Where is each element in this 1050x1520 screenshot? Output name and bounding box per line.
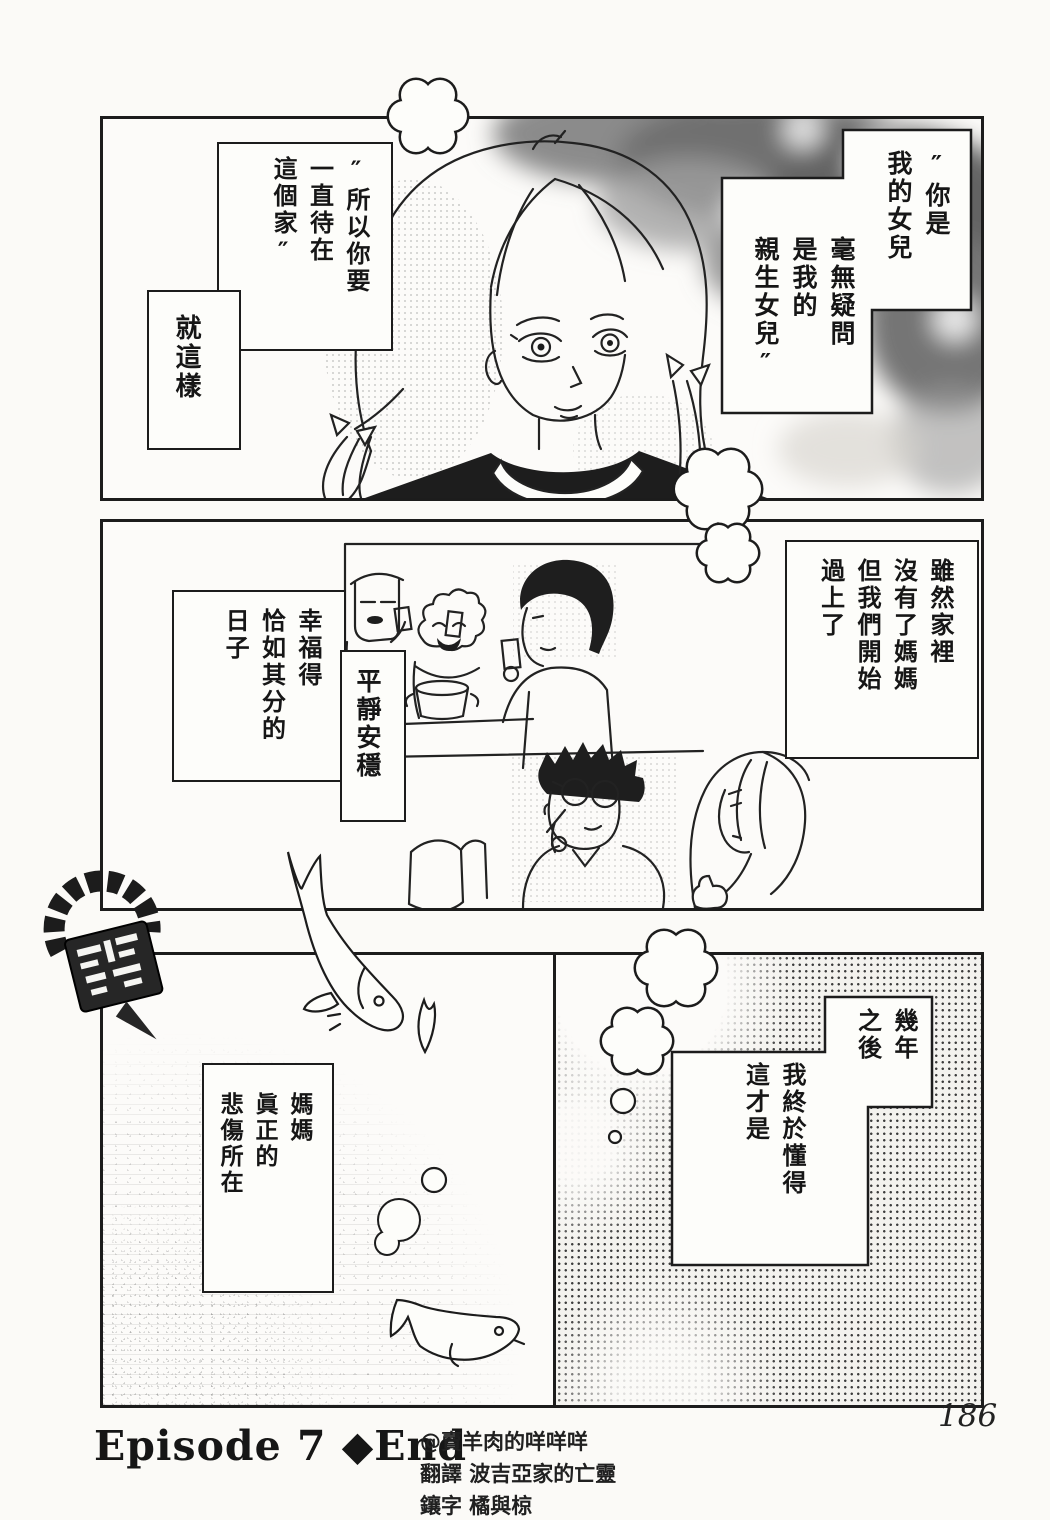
manga-page: ″你是 我的女兒 毫無疑問 是我的 親生女兒″ ″所以你要 一直待在 這個家″ … [0,0,1050,1520]
caption-although: 雖然家裡 沒有了媽媽 但我們開始 過上了 [812,558,958,693]
caption-mother: 媽媽 眞正的 悲傷所在 [211,1092,316,1196]
page-number: 186 [938,1398,997,1434]
caption-happy: 幸福得 恰如其分的 日子 [217,608,326,743]
credit-line-translator: 翻譯 波吉亞家的亡靈 [420,1458,616,1490]
credits-block: @賣羊肉的咩咩咩 翻譯 波吉亞家的亡靈 鑲字 橘與椋 [420,1426,616,1520]
caption-no-doubt: 毫無疑問 是我的 親生女兒″ [746,236,860,380]
credit-line-typesetter: 鑲字 橘與椋 [420,1490,616,1520]
caption-understand: 我終於懂得 這才是 [737,1062,810,1197]
caption-calm: 平靜安穩 [348,668,386,780]
caption-you-are: ″你是 我的女兒 [879,150,955,262]
caption-stay: ″所以你要 一直待在 這個家″ [265,156,374,295]
caption-years: 幾年 之後 [849,1008,922,1062]
credit-line-group: @賣羊肉的咩咩咩 [420,1426,616,1458]
episode-end-label: Episode 7 ◆End [94,1422,467,1470]
caption-just-like-that: 就這樣 [165,314,205,401]
